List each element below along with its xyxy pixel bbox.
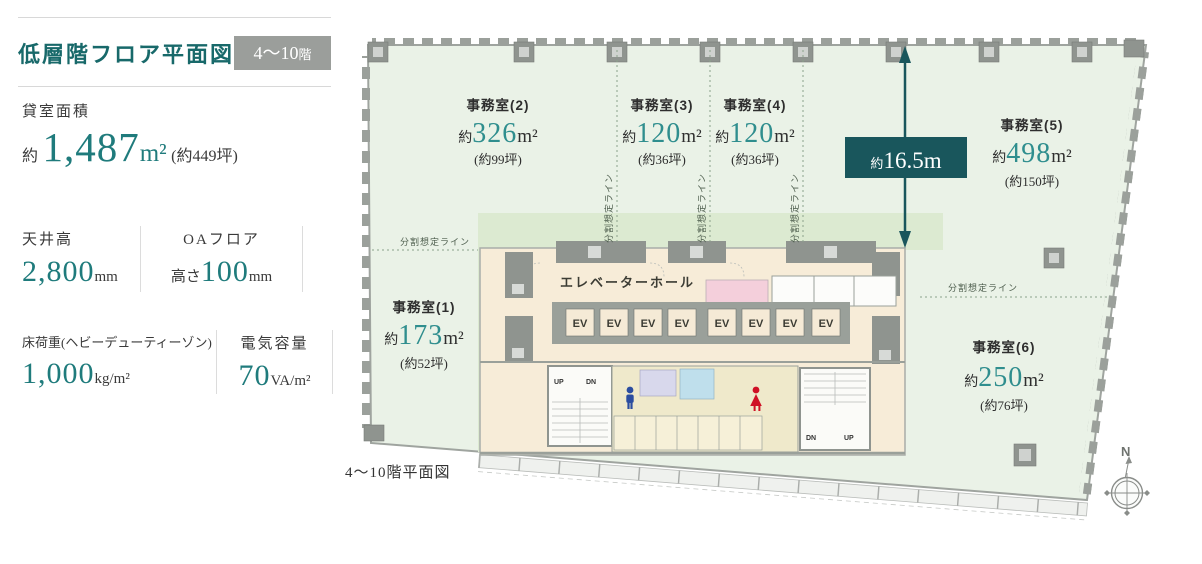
division-line-label: 分割想定ライン — [603, 173, 614, 243]
stair-up-label: UP — [844, 435, 854, 442]
stair-left: UP DN — [548, 366, 612, 446]
ev-cell-label: EV — [715, 318, 730, 330]
ev-cell-label: EV — [749, 318, 764, 330]
svg-text:事務室(5): 事務室(5) — [1001, 117, 1064, 133]
ev-cell-label: EV — [783, 318, 798, 330]
svg-text:(約99坪): (約99坪) — [474, 152, 522, 167]
stair-dn-label: DN — [806, 435, 816, 442]
floor-plan: EV EV EV EV EV EV EV EV エレベーターホール UP DN — [0, 0, 1202, 564]
pink-room — [706, 280, 768, 304]
ev-cell-label: EV — [675, 318, 690, 330]
division-line-label: 分割想定ライン — [789, 173, 800, 243]
restrooms — [612, 366, 798, 452]
stair-dn-label: DN — [586, 379, 596, 386]
division-line-label: 分割想定ライン — [948, 282, 1018, 293]
page: 低層階フロア平面図 4〜10階 貸室面積 約 1,487m² (約449坪) 天… — [0, 0, 1202, 564]
svg-text:事務室(1): 事務室(1) — [393, 299, 456, 315]
elevator-bank: EV EV EV EV EV EV EV EV — [552, 302, 850, 344]
svg-text:(約76坪): (約76坪) — [980, 398, 1028, 413]
svg-text:事務室(4): 事務室(4) — [724, 97, 787, 113]
svg-text:(約150坪): (約150坪) — [1005, 174, 1059, 189]
ev-cell-label: EV — [573, 318, 588, 330]
svg-text:(約36坪): (約36坪) — [638, 152, 686, 167]
core: EV EV EV EV EV EV EV EV エレベーターホール UP DN — [480, 241, 905, 455]
plan-caption: 4〜10階平面図 — [345, 464, 451, 481]
elevator-hall-label: エレベーターホール — [560, 275, 695, 290]
north-compass-icon: N — [1104, 444, 1150, 516]
ev-cell-label: EV — [819, 318, 834, 330]
svg-text:事務室(3): 事務室(3) — [631, 97, 694, 113]
svg-text:事務室(6): 事務室(6) — [973, 339, 1036, 355]
svg-text:事務室(2): 事務室(2) — [467, 97, 530, 113]
ev-cell-label: EV — [641, 318, 656, 330]
service-rooms — [772, 276, 896, 306]
stair-up-label: UP — [554, 379, 564, 386]
svg-text:(約52坪): (約52坪) — [400, 356, 448, 371]
svg-text:(約36坪): (約36坪) — [731, 152, 779, 167]
division-line-label: 分割想定ライン — [696, 173, 707, 243]
ev-cell-label: EV — [607, 318, 622, 330]
division-line-label: 分割想定ライン — [400, 236, 470, 247]
stair-right: DN UP — [800, 368, 870, 450]
